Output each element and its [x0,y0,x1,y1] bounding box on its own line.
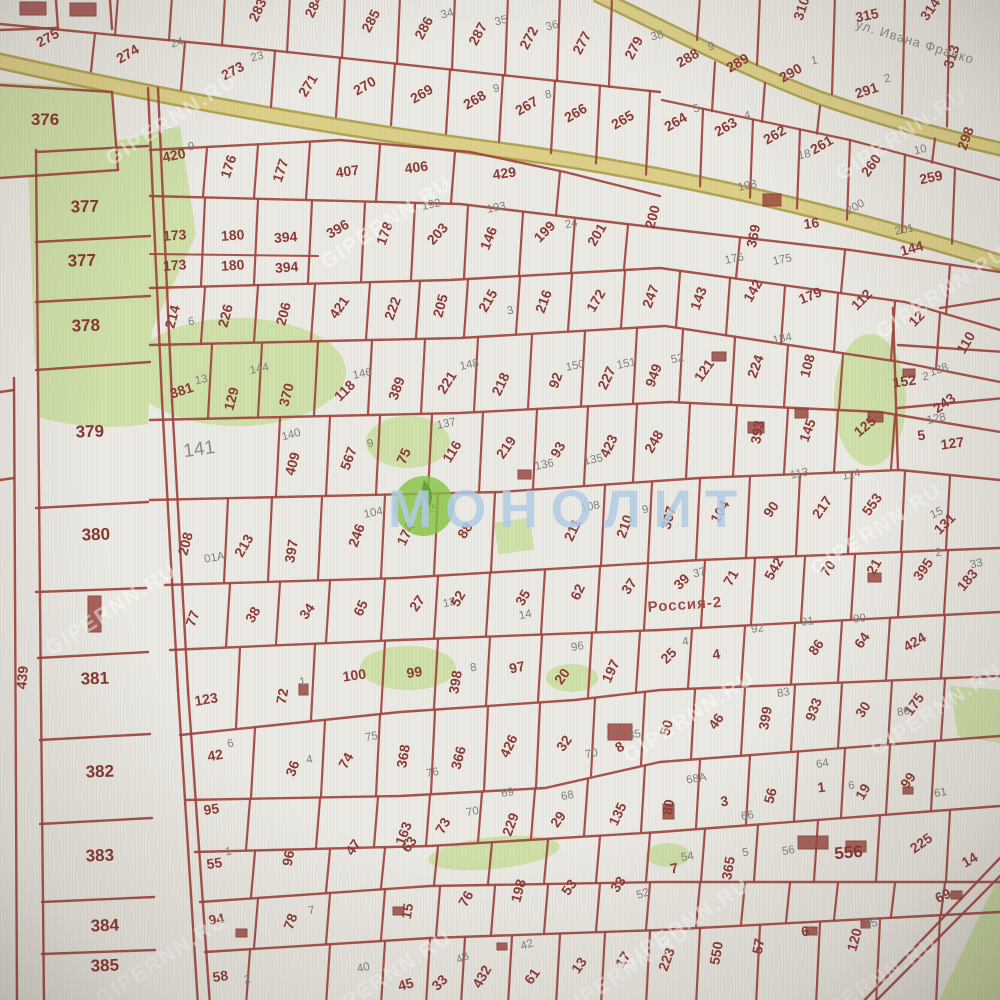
parcel-label: 285 [358,6,383,34]
parcel-label: 35 [512,587,534,609]
parcel-label: 268 [460,87,488,113]
parcel-label: 143 [687,284,710,312]
building [236,929,247,937]
parcel-label: 146 [477,224,501,252]
parcel-label: 70 [584,747,599,761]
parcel-label: 377 [67,251,96,271]
parcel-label: 14 [959,849,981,871]
parcel-label: 34 [296,600,318,622]
parcel-label: 30 [852,698,874,720]
parcel-label: 96 [570,640,585,654]
parcel-label: 9 [492,83,501,96]
parcel-label: 1 [224,846,232,859]
parcel-label: 61 [933,786,948,800]
street-name: ул. Ивана Франко [854,17,976,67]
parcel-label: 217 [809,493,836,521]
parcel-label: 43 [454,950,471,966]
parcel-label: 398 [445,669,465,695]
parcel-label: 177 [269,157,292,184]
parcel-label: 216 [532,287,555,315]
parcel-label: 198 [507,877,529,904]
parcel-label: 54 [680,850,695,864]
parcel-label: 406 [404,157,430,176]
parcel-label: 383 [85,846,114,866]
parcel-label: 141 [182,437,216,462]
parcel-label: 368 [393,743,413,769]
parcel-label: 272 [516,23,541,51]
parcel-label: 8 [544,89,553,102]
parcel-label: 550 [706,940,726,966]
parcel-label: 283 [245,0,269,24]
parcel-label: 123 [193,689,219,709]
parcel-label: 380 [81,525,110,545]
parcel-label: 556 [834,842,864,863]
parcel-label: 205 [429,292,451,319]
parcel-label: 91 [800,615,814,629]
parcel-label: 90 [760,498,782,520]
building [798,836,828,849]
parcel-label: 176 [217,153,240,180]
parcel-label: 33 [607,873,629,895]
parcel-label: 277 [569,28,594,56]
parcel-label: 69 [932,885,953,906]
parcel-label: 100 [342,665,368,684]
parcel-label: 42 [519,937,535,952]
parcel-label: 394 [274,258,299,276]
parcel-label: 4 [711,646,721,663]
parcel-label: 72 [273,687,291,705]
parcel-label: 40 [356,961,371,975]
parcel-label: 399 [755,705,775,731]
parcel-label: 136 [534,457,555,473]
parcel-label: 52 [670,352,685,366]
parcel-label: 120 [843,926,865,953]
parcel-label: 38 [242,604,264,626]
parcel-label: 65 [350,597,371,618]
parcel-label: 227 [594,364,618,392]
building [763,194,781,206]
parcel-label: 397 [281,538,301,564]
parcel-label: 432 [469,962,495,990]
parcel-label: 112 [848,286,875,313]
parcel-label: 197 [598,657,622,685]
parcel-label: 219 [493,433,520,461]
parcel-label: 4 [681,635,690,648]
parcel-label: 949 [642,361,665,389]
parcel-label: 2 [922,371,930,384]
parcel-label: 439 [13,665,31,690]
parcel-label: 2 [934,547,942,560]
parcel-label: 25 [657,644,679,666]
parcel-label: 5 [741,847,749,860]
parcel-label: 5 [692,103,701,116]
parcel-label: 424 [900,629,928,655]
parcel-label: 385 [90,956,119,976]
parcel-label: 58 [211,967,229,985]
parcel-label: 176 [724,251,745,267]
parcel-label: 90 [852,612,866,626]
parcel-label: 279 [621,33,646,61]
parcel-label: 267 [512,93,540,119]
parcel-label: 4 [743,109,752,122]
parcel-label: 15 [398,902,416,920]
parcel-label: 128 [926,411,947,427]
parcel-label: 1 [810,55,819,68]
parcel-label: 266 [561,100,589,126]
parcel-label: 27 [406,592,428,614]
parcel-label: 1 [298,676,306,689]
parcel-label: 47 [342,836,364,858]
parcel-label: 287 [465,19,490,47]
parcel-label: 108 [796,352,818,379]
parcel-label: 42 [206,746,224,764]
building [497,943,507,950]
parcel-label: 64 [851,629,873,651]
parcel-label: 376 [31,110,59,129]
parcel-label: 409 [281,450,303,477]
parcel-label: 381 [80,669,109,689]
parcel-label: 246 [345,521,368,549]
parcel-label: 9 [707,41,716,54]
parcel-label: 265 [608,107,636,133]
parcel-label: 152 [892,371,918,390]
parcel-label: 270 [350,73,378,99]
parcel-label: 395 [910,555,937,583]
parcel-label: 96 [279,849,297,867]
parcel-label: 56 [781,844,796,858]
site-watermark: GIPERNN.RU [615,874,755,976]
building [518,470,531,479]
parcel-label: 426 [496,732,520,760]
parcel-label: 70 [465,805,480,819]
parcel-label: 61 [521,965,543,987]
parcel-label: 37 [618,575,640,597]
parcel-label: 4 [305,753,314,766]
parcel-label: 62 [567,581,588,602]
parcel-label: 18 [797,148,812,162]
parcel-label: 114 [841,467,862,483]
parcel-label: 201 [584,220,610,248]
parcel-label: 6 [847,780,855,793]
parcel-label: 247 [639,282,662,310]
parcel-label: 291 [853,79,880,102]
parcel-label: 286 [411,13,436,41]
parcel-label: 73 [432,815,454,837]
parcel-label: 110 [953,329,978,357]
parcel-label: 33 [969,557,984,571]
parcel-label: 33 [428,971,450,993]
parcel-label: 248 [641,427,667,455]
parcel-label: 78 [280,911,300,931]
parcel-label: 263 [711,114,739,140]
parcel-label: 264 [661,109,689,135]
parcel-label: 6 [800,922,811,939]
parcel-label: 2 [883,73,892,86]
parcel-label: 14 [518,608,534,623]
parcel-label: 269 [407,81,435,107]
parcel-label: 01А [203,550,226,565]
building [795,409,808,418]
parcel-label: 64 [815,757,830,771]
parcel-label: 222 [381,294,404,322]
parcel-label: 200 [641,203,663,230]
parcel-label: 421 [326,293,353,321]
parcel-label: 384 [90,915,120,935]
parcel-label: 92 [545,370,565,390]
parcel-label: 104 [363,505,385,521]
parcel-label: 56 [760,786,780,805]
parcel-label: 99 [405,663,423,681]
parcel-label: 57 [749,937,767,955]
parcel-label: 377 [70,197,99,217]
parcel-label: 23 [249,50,264,65]
monolit-logo: МОНОЛИТ [388,476,750,539]
parcel-label: 13 [568,954,590,976]
parcel-label: 225 [907,830,935,857]
parcel-label: 36 [282,758,302,778]
parcel-label: 173 [162,226,187,244]
parcel-label: 314 [917,0,944,23]
parcel-label: 86 [805,636,827,658]
parcel-label: 259 [918,167,944,188]
parcel-label: 3 [719,793,729,810]
parcel-label: 76 [455,888,477,910]
parcel-label: 369 [743,223,764,249]
parcel-label: 71 [720,567,742,589]
cadastral-map-photo: 2752742427323271283284285286342873527236… [0,0,1000,1000]
parcel-label: 80 [659,798,677,816]
parcel-label: 423 [596,432,620,460]
cadastral-map[interactable]: 2752742427323271283284285286342873527236… [0,0,1000,1000]
parcel-label: 394 [273,228,298,246]
parcel-label: 199 [531,217,559,245]
parcel-label: 382 [85,762,114,782]
parcel-label: 39 [670,570,692,592]
building [951,891,962,899]
parcel-label: 74 [335,750,357,772]
parcel-label: 69 [500,786,515,800]
parcel-label: 379 [75,422,104,442]
site-watermark: GIPERNN.RU [42,559,182,661]
area-label: Россия-2 [647,594,723,616]
parcel-label: 76 [425,766,440,780]
parcel-label: 29 [547,808,569,830]
parcel-label: 32 [553,732,575,754]
parcel-label: 127 [940,433,966,452]
parcel-label: 407 [335,161,361,180]
parcel-label: 215 [475,286,501,314]
parcel-label: 145 [796,416,819,444]
parcel-label: 175 [772,252,793,268]
parcel-label: 99 [897,769,919,791]
parcel-label: 138 [928,361,950,379]
parcel-label: 218 [488,370,512,398]
parcel-label: 3 [506,305,515,318]
parcel-label: 6 [226,738,234,751]
parcel-label: 208 [174,530,196,557]
parcel-label: 55 [205,854,223,872]
parcel-label: 393 [747,419,767,445]
parcel-label: 5 [916,427,926,444]
parcel-label: 68А [685,771,708,786]
parcel-label: 366 [447,744,469,771]
parcel-label: 378 [71,316,100,336]
parcel-label: 221 [434,368,460,396]
parcel-label: 97 [508,658,527,677]
parcel-label: 172 [583,286,609,314]
parcel-label: 173 [162,256,187,274]
site-watermark: GIPERNN.RU [803,932,943,1000]
parcel-label: 180 [220,256,245,274]
parcel-label: 140 [280,427,302,444]
parcel-label: 7 [307,905,315,918]
parcel-label: 213 [231,531,257,559]
building [20,2,46,15]
parcel-label: 137 [436,416,457,432]
parcel-label: 274 [113,41,141,67]
parcel-label: 193 [486,200,507,216]
parcel-label: 9 [187,141,196,154]
parcel-label: 933 [802,695,825,723]
building [712,352,726,361]
parcel-label: 92 [750,622,764,636]
parcel-label: 8 [469,662,477,675]
parcel-label: 83 [776,686,791,700]
parcel-label: 567 [337,444,360,472]
parcel-label: 271 [295,71,321,99]
parcel-label: 24 [169,35,185,50]
parcel-label: 180 [220,226,245,244]
parcel-label: 229 [499,810,522,838]
parcel-label: 75 [364,730,379,744]
parcel-label: 310 [790,0,813,22]
parcel-label: 224 [744,352,767,380]
parcel-label: 429 [492,163,518,182]
parcel-label: 214 [161,303,183,330]
parcel-label: 10 [913,143,928,157]
parcel-label: 66 [740,809,755,823]
parcel-label: 6 [187,316,196,329]
parcel-label: 284 [301,0,325,20]
parcel-label: 206 [272,300,294,327]
parcel-label: 113 [789,466,809,482]
parcel-label: 68 [560,789,575,803]
logo-text: МОНОЛИТ [388,480,750,539]
parcel-label: 1 [816,779,826,796]
parcel-label: 135 [605,800,629,828]
parcel-label: 16 [802,214,820,232]
green-area [427,830,562,876]
parcel-label: 95 [202,800,220,818]
parcel-label: 2 [243,974,251,987]
parcel-label: 203 [424,219,452,247]
parcel-label: 53 [558,876,580,898]
parcel-label: 36 [544,19,559,34]
building [70,3,96,16]
parcel-label: 389 [385,374,408,402]
